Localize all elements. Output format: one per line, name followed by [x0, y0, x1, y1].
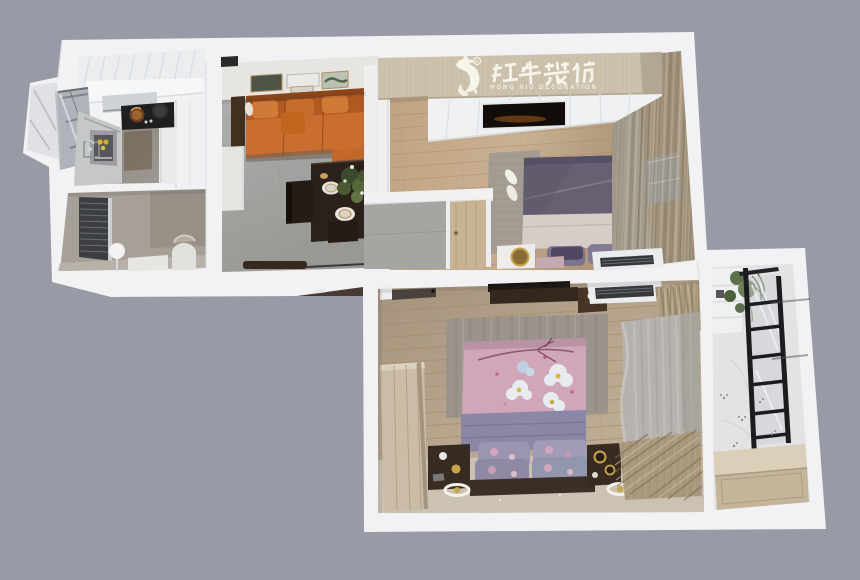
svg-text:R: R [475, 60, 479, 66]
svg-text:HONG NIU DECORATION: HONG NIU DECORATION [490, 85, 598, 91]
